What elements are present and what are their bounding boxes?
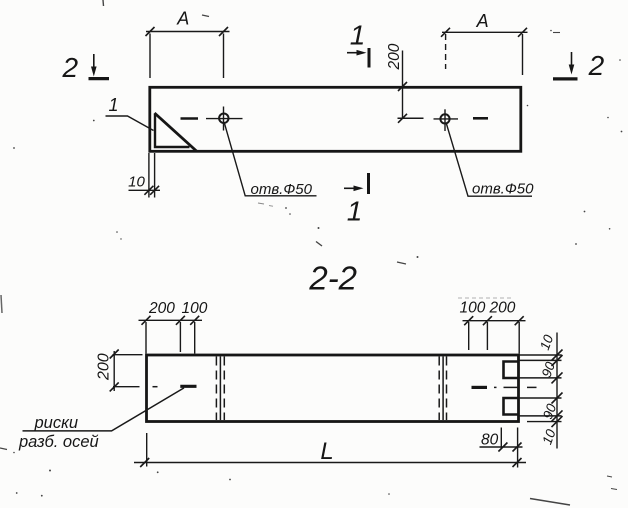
svg-text:A: A <box>476 11 489 31</box>
svg-text:80: 80 <box>481 432 499 449</box>
svg-text:L: L <box>320 438 333 465</box>
svg-text:10: 10 <box>537 332 556 352</box>
svg-text:200: 200 <box>386 43 403 70</box>
svg-text:отв.Ф50: отв.Ф50 <box>472 181 534 198</box>
svg-text:200: 200 <box>96 353 113 381</box>
svg-text:риски: риски <box>34 414 79 432</box>
svg-text:2: 2 <box>588 50 605 81</box>
svg-text:2-2: 2-2 <box>308 260 357 297</box>
svg-text:100: 100 <box>182 300 208 317</box>
svg-text:1: 1 <box>350 20 366 51</box>
svg-text:200: 200 <box>489 300 516 317</box>
svg-text:разб. осей: разб. осей <box>18 433 99 451</box>
svg-text:10: 10 <box>128 174 145 191</box>
svg-text:1: 1 <box>108 95 118 115</box>
svg-text:100: 100 <box>460 300 486 317</box>
svg-text:200: 200 <box>148 300 175 317</box>
svg-text:2: 2 <box>62 52 79 83</box>
svg-text:1: 1 <box>347 196 363 227</box>
svg-text:отв.Ф50: отв.Ф50 <box>251 181 313 198</box>
svg-text:A: A <box>176 9 189 29</box>
svg-text:10: 10 <box>539 427 558 447</box>
